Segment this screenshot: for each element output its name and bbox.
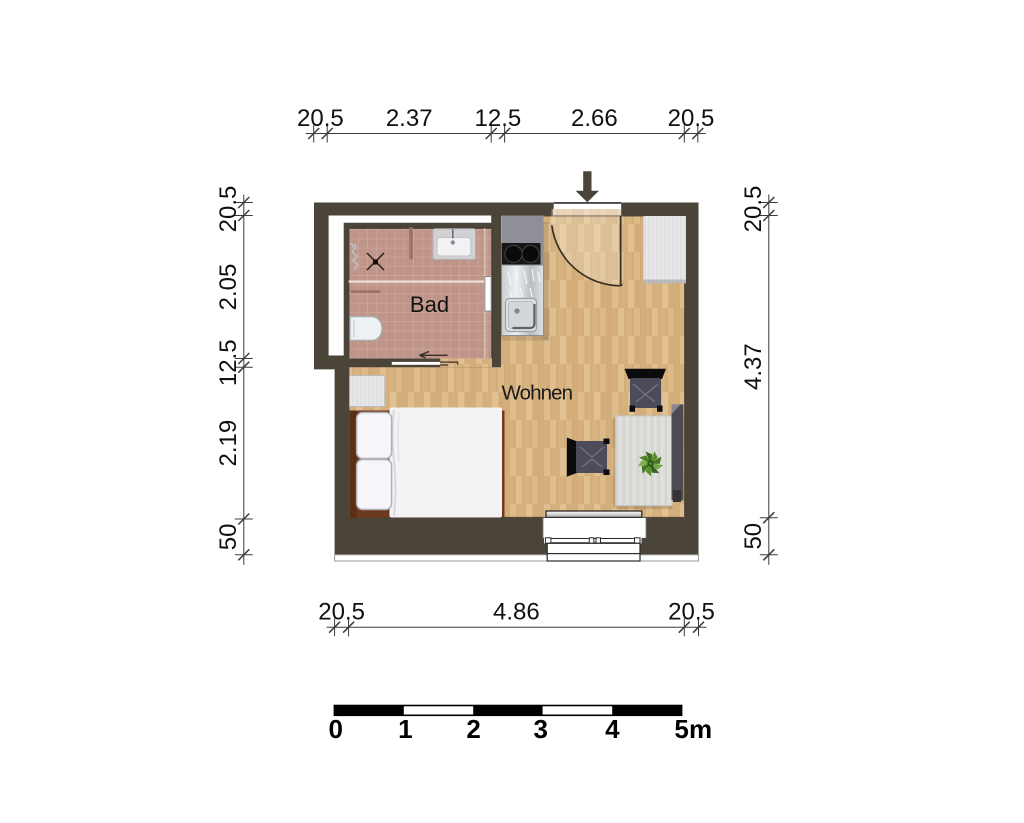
svg-text:2.05: 2.05	[215, 264, 242, 311]
svg-text:12.5: 12.5	[215, 339, 242, 386]
svg-text:20.5: 20.5	[668, 599, 715, 626]
svg-text:Wohnen: Wohnen	[502, 382, 574, 405]
svg-text:12.5: 12.5	[475, 105, 522, 132]
svg-text:20.5: 20.5	[318, 599, 365, 626]
svg-text:4.86: 4.86	[493, 599, 540, 626]
svg-text:1: 1	[398, 714, 412, 744]
svg-text:2.19: 2.19	[215, 420, 242, 467]
svg-text:0: 0	[328, 714, 342, 744]
svg-text:4: 4	[605, 714, 620, 744]
svg-text:2: 2	[466, 714, 480, 744]
svg-text:20.5: 20.5	[215, 186, 242, 233]
svg-text:2.66: 2.66	[571, 105, 618, 132]
svg-text:50: 50	[740, 523, 767, 550]
svg-text:20.5: 20.5	[297, 105, 344, 132]
svg-text:20.5: 20.5	[740, 186, 767, 233]
svg-text:3: 3	[533, 714, 547, 744]
svg-text:Bad: Bad	[410, 292, 449, 317]
svg-text:5: 5	[674, 714, 688, 744]
svg-text:4.37: 4.37	[740, 343, 767, 390]
svg-text:2.37: 2.37	[386, 105, 433, 132]
svg-text:50: 50	[215, 524, 242, 551]
svg-text:m: m	[689, 714, 712, 744]
svg-text:20.5: 20.5	[668, 105, 715, 132]
